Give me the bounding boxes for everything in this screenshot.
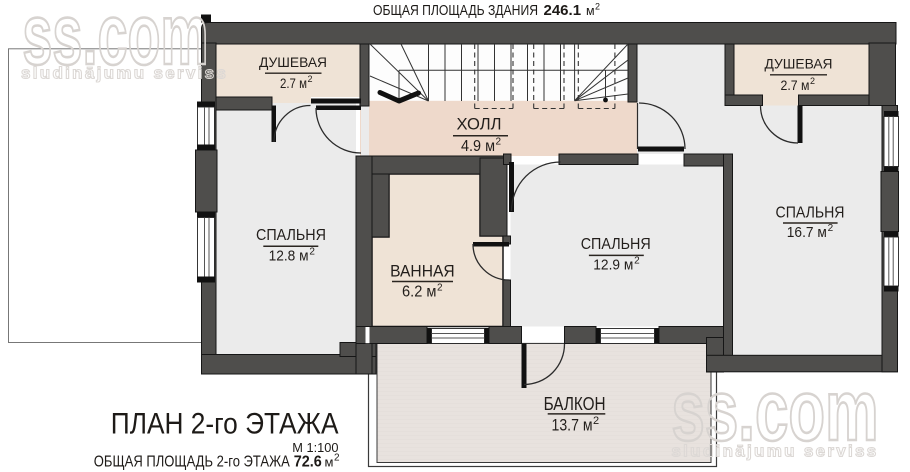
svg-text:м: м [325,455,334,470]
svg-text:4.9 м: 4.9 м [461,138,495,155]
svg-text:sludinājumu serviss: sludinājumu serviss [671,441,878,460]
svg-text:246.1: 246.1 [544,2,582,19]
svg-text:6.2 м: 6.2 м [402,283,437,300]
svg-text:м: м [586,4,595,18]
svg-text:2: 2 [595,2,600,12]
svg-text:72.6: 72.6 [294,454,322,471]
svg-text:sludinājumu serviss: sludinājumu serviss [21,64,228,83]
svg-text:СПАЛЬНЯ: СПАЛЬНЯ [581,236,651,253]
svg-text:12.9 м: 12.9 м [593,257,633,274]
svg-text:12.8 м: 12.8 м [269,248,309,265]
svg-text:13.7 м: 13.7 м [552,416,593,435]
svg-text:СПАЛЬНЯ: СПАЛЬНЯ [776,204,845,221]
svg-text:ОБЩАЯ ПЛОЩАДЬ 2-го ЭТАЖА: ОБЩАЯ ПЛОЩАДЬ 2-го ЭТАЖА [94,454,290,471]
svg-text:2: 2 [308,74,313,84]
svg-text:2: 2 [309,247,315,258]
svg-text:СПАЛЬНЯ: СПАЛЬНЯ [256,227,326,244]
svg-text:ХОЛЛ: ХОЛЛ [457,116,502,134]
svg-text:2: 2 [634,256,640,267]
svg-text:2.7 м: 2.7 м [781,77,810,93]
svg-text:2: 2 [437,282,443,293]
svg-text:БАЛКОН: БАЛКОН [544,393,606,414]
svg-text:ПЛАН 2-го ЭТАЖА: ПЛАН 2-го ЭТАЖА [111,408,339,441]
svg-text:2: 2 [828,223,834,234]
svg-text:2: 2 [810,76,815,86]
svg-text:2.7 м: 2.7 м [280,75,307,91]
svg-text:2: 2 [593,415,599,427]
svg-text:ВАННАЯ: ВАННАЯ [390,262,455,280]
svg-text:2: 2 [334,453,340,464]
svg-text:2: 2 [496,137,502,148]
svg-text:16.7 м: 16.7 м [787,224,827,241]
svg-text:ДУШЕВАЯ: ДУШЕВАЯ [259,55,327,70]
svg-text:ДУШЕВАЯ: ДУШЕВАЯ [765,57,833,72]
svg-text:ОБЩАЯ ПЛОЩАДЬ ЗДАНИЯ: ОБЩАЯ ПЛОЩАДЬ ЗДАНИЯ [373,2,538,19]
